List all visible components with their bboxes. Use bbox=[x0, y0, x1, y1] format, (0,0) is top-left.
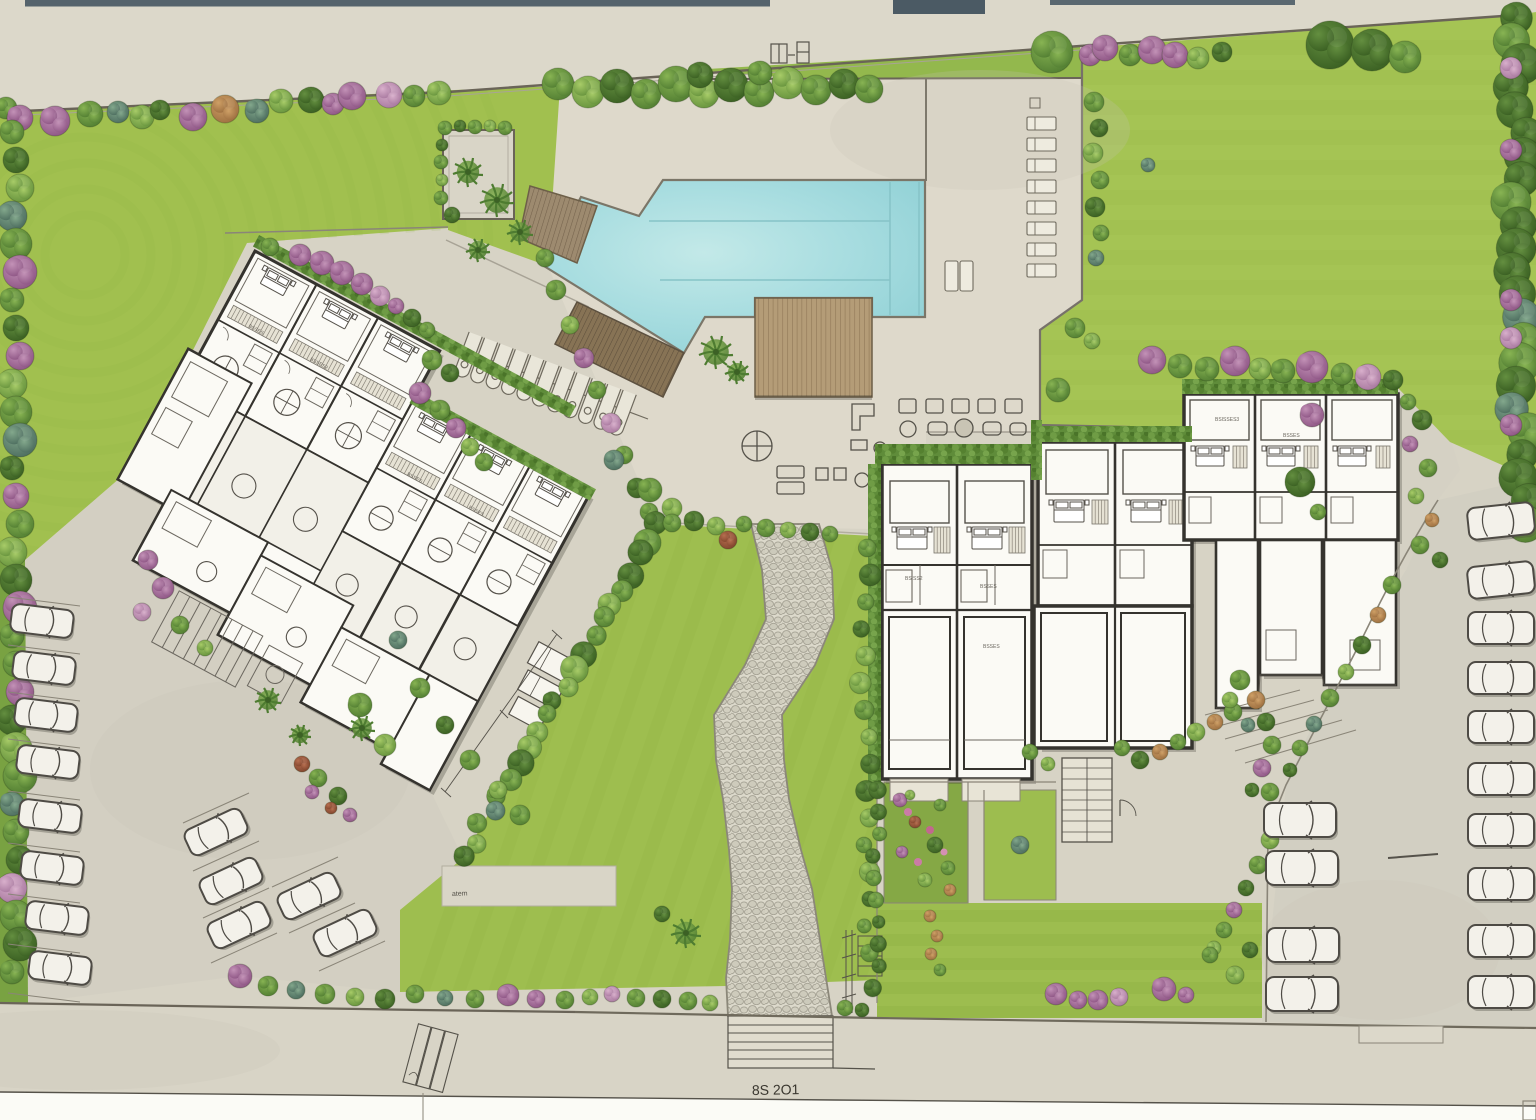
svg-text:atem: atem bbox=[452, 890, 468, 898]
svg-text:BSSES: BSSES bbox=[1283, 433, 1300, 439]
svg-text:BSISSES3: BSISSES3 bbox=[1215, 417, 1239, 423]
svg-text:BSSES: BSSES bbox=[983, 644, 1000, 650]
svg-text:8S 2O1: 8S 2O1 bbox=[752, 1081, 800, 1098]
svg-text:BSSES: BSSES bbox=[980, 584, 997, 590]
svg-text:BSISS2: BSISS2 bbox=[905, 576, 923, 582]
